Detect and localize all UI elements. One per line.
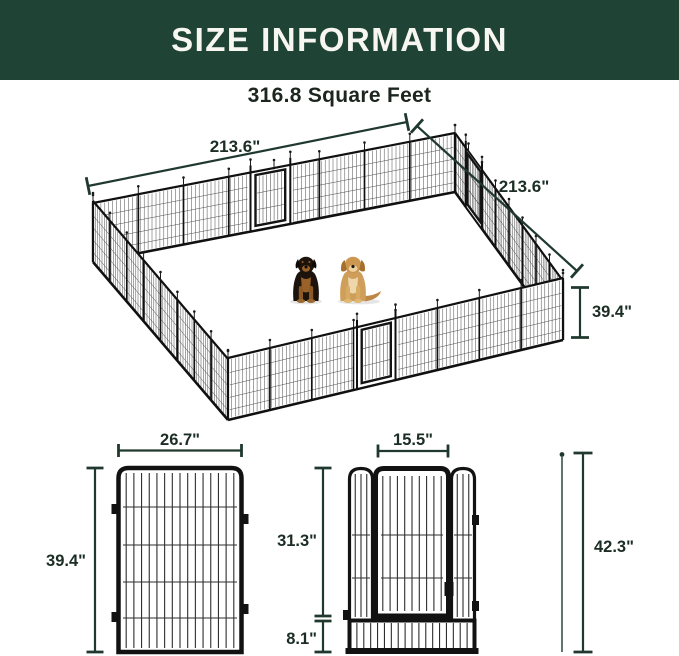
golden-retriever-illustration [338,257,381,305]
dim-bottom-height: 8.1" [286,630,317,648]
gate-tab [472,515,479,525]
gate-tab [472,601,479,611]
gate-latch [445,582,454,596]
size-diagram: 213.6" 213.6" 39.4" 26.7" 39.4" [0,0,679,656]
dim-total-height: 42.3" [594,538,634,556]
rottweiler-illustration [290,257,322,305]
panel-tab [112,504,119,514]
panel-tab [242,604,249,614]
size-information-page: SIZE INFORMATION 316.8 Square Feet [0,0,679,656]
pen-wall [227,269,565,420]
dim-side-right: 213.6" [499,177,550,196]
dim-pen-height: 39.4" [592,303,632,321]
dim-panel-width: 26.7" [160,431,200,449]
playpen-isometric-drawing [92,124,565,420]
panel-tab [112,612,119,622]
stake-pin-dot [560,452,565,457]
dim-door-height: 31.3" [277,532,317,550]
dim-side-left: 213.6" [210,137,261,156]
gate-tab [343,610,350,620]
panel-mesh-bars [123,473,237,648]
gate-front-view: 15.5" 31.3" 8.1" 42.3" [277,431,634,652]
panel-front-view: 26.7" 39.4" [46,431,248,652]
dim-door-width: 15.5" [393,431,433,449]
dim-panel-height: 39.4" [46,552,86,570]
pen-wall [92,124,457,262]
dogs-illustration [290,257,381,305]
panel-tab [242,514,249,524]
